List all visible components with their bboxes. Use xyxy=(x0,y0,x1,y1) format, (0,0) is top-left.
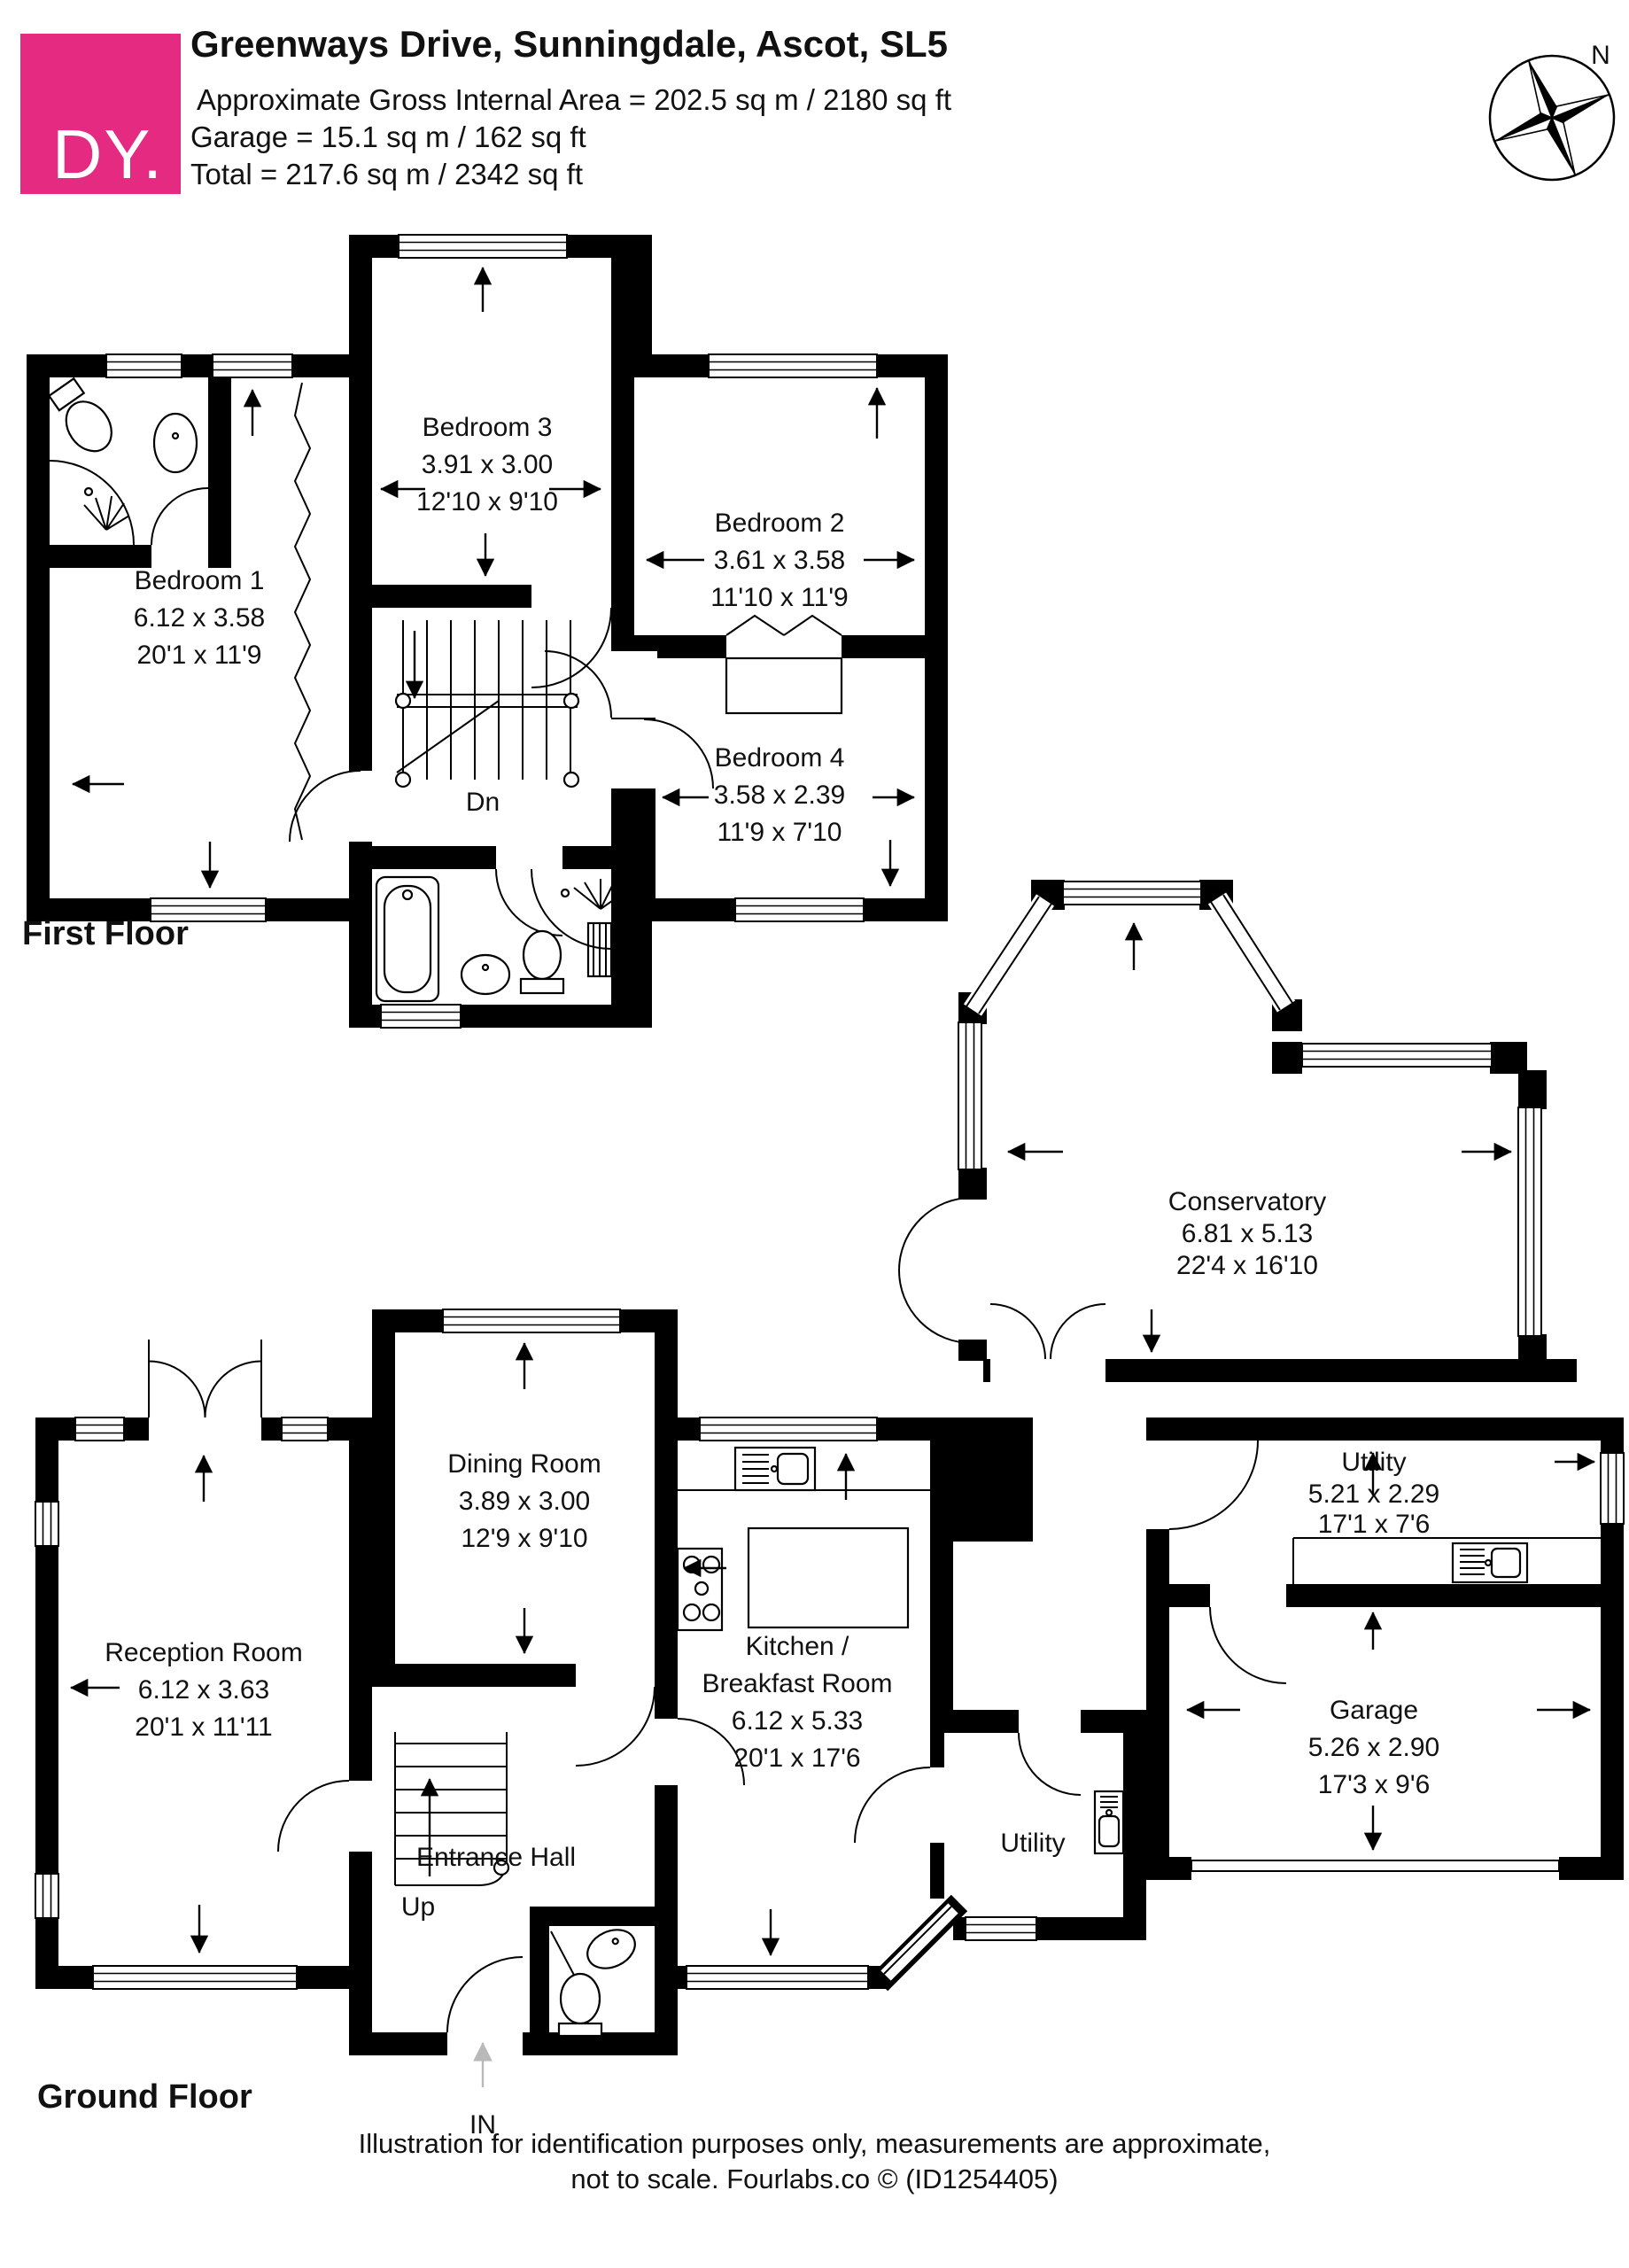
window xyxy=(381,1005,461,1028)
room-dim-metric: 3.89 x 3.00 xyxy=(459,1487,590,1516)
window xyxy=(687,1966,868,1989)
window xyxy=(1063,882,1201,905)
room-dim-metric: 6.12 x 5.33 xyxy=(732,1706,863,1736)
window xyxy=(966,1917,1036,1940)
window xyxy=(35,1874,58,1918)
window xyxy=(735,898,864,921)
kitchen-sink-icon xyxy=(735,1448,815,1490)
window xyxy=(1518,1107,1541,1336)
total-area-line: Total = 217.6 sq m / 2342 sq ft xyxy=(190,158,583,191)
room-dim-imperial: 17'3 x 9'6 xyxy=(1318,1770,1431,1799)
window xyxy=(709,354,877,377)
floorplan-drawing: N xyxy=(0,0,1629,2268)
window xyxy=(399,235,567,258)
compass-north-label: N xyxy=(1591,41,1610,70)
stairs-up-label: Up xyxy=(401,1892,435,1922)
utility-sink-icon xyxy=(1453,1543,1527,1582)
agency-logo: DY. xyxy=(20,34,181,194)
sink-icon xyxy=(154,414,197,472)
room-label: Breakfast Room xyxy=(702,1669,892,1698)
room-label: Kitchen / xyxy=(746,1632,849,1661)
room-label: Dining Room xyxy=(447,1449,601,1479)
small-utility-sink-icon xyxy=(1095,1791,1123,1853)
agency-logo-text: DY. xyxy=(20,123,164,194)
compass-icon: N xyxy=(1471,37,1629,198)
conservatory-structure xyxy=(899,880,1577,1382)
room-dim-imperial: 20'1 x 17'6 xyxy=(733,1744,860,1773)
room-label: Conservatory xyxy=(1168,1187,1326,1216)
bath-icon xyxy=(376,877,438,1001)
room-dim-imperial: 12'10 x 9'10 xyxy=(416,487,558,517)
room-dim-imperial: 22'4 x 16'10 xyxy=(1176,1251,1318,1280)
room-label: Garage xyxy=(1330,1696,1418,1725)
sink-icon xyxy=(462,955,509,994)
stairs-down-label: Dn xyxy=(466,788,500,817)
garage-area-line: Garage = 15.1 sq m / 162 sq ft xyxy=(190,120,586,154)
room-dim-imperial: 20'1 x 11'11 xyxy=(135,1713,272,1742)
room-dim-imperial: 11'9 x 7'10 xyxy=(717,818,842,847)
entrance-hall-label: Entrance Hall xyxy=(416,1843,576,1872)
room-dim-metric: 3.91 x 3.00 xyxy=(422,450,553,479)
window xyxy=(443,1309,620,1332)
room-label: Bedroom 1 xyxy=(135,566,265,595)
window xyxy=(282,1417,328,1441)
window xyxy=(106,354,182,377)
window xyxy=(1302,1044,1492,1067)
window xyxy=(93,1966,297,1989)
page-title: Greenways Drive, Sunningdale, Ascot, SL5 xyxy=(190,23,948,66)
room-dim-imperial: 20'1 x 11'9 xyxy=(136,641,261,670)
entrance-in-marker: IN xyxy=(469,2043,496,2140)
window xyxy=(1601,1453,1624,1524)
room-dim-metric: 6.81 x 5.13 xyxy=(1182,1219,1313,1248)
floorplan-page: { "header": { "logo": "DY.", "title": "G… xyxy=(0,0,1629,2268)
gross-area-line: Approximate Gross Internal Area = 202.5 … xyxy=(197,83,951,117)
room-dim-imperial: 17'1 x 7'6 xyxy=(1318,1510,1431,1539)
room-dim-metric: 5.26 x 2.90 xyxy=(1308,1733,1439,1762)
toilet-icon xyxy=(521,931,563,993)
toilet-icon xyxy=(559,1974,601,2036)
room-dim-imperial: 11'10 x 11'9 xyxy=(710,583,848,612)
window xyxy=(700,1417,877,1441)
ground-floor-label: Ground Floor xyxy=(37,2078,252,2117)
room-label: Utility xyxy=(1000,1829,1065,1858)
room-dim-metric: 3.58 x 2.39 xyxy=(714,781,845,810)
ground-floor-plan: Reception Room 6.12 x 3.63 20'1 x 11'11 … xyxy=(35,880,1624,2140)
room-dim-metric: 6.12 x 3.63 xyxy=(138,1675,269,1705)
room-label: Bedroom 3 xyxy=(423,413,553,442)
room-dim-metric: 3.61 x 3.58 xyxy=(714,546,845,575)
first-floor-label: First Floor xyxy=(22,915,189,953)
room-label: Bedroom 2 xyxy=(715,509,845,538)
disclaimer-line-2: not to scale. Fourlabs.co © (ID1254405) xyxy=(0,2163,1629,2195)
room-dim-imperial: 12'9 x 9'10 xyxy=(461,1524,587,1553)
window xyxy=(958,1022,981,1169)
window xyxy=(75,1417,124,1441)
room-label: Reception Room xyxy=(105,1638,302,1667)
window xyxy=(35,1502,58,1546)
disclaimer-line-1: Illustration for identification purposes… xyxy=(0,2128,1629,2160)
window xyxy=(213,354,292,377)
room-label: Bedroom 4 xyxy=(715,743,845,773)
room-dim-metric: 6.12 x 3.58 xyxy=(134,603,265,633)
hob-icon xyxy=(678,1549,722,1630)
radiator-icon xyxy=(588,923,611,976)
kitchen-island xyxy=(749,1528,908,1627)
